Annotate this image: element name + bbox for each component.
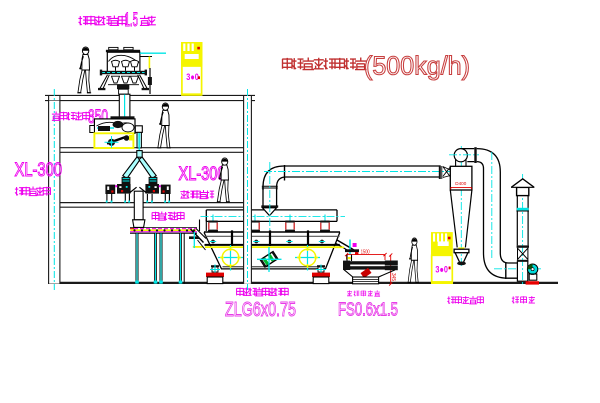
svg-text:3●0: 3●0 xyxy=(186,72,199,83)
svg-text:3●0: 3●0 xyxy=(435,265,448,276)
svg-text:FS0.6x1.5: FS0.6x1.5 xyxy=(338,298,398,319)
svg-text:1500: 1500 xyxy=(361,249,370,255)
svg-text:XL-300: XL-300 xyxy=(179,164,226,185)
svg-text:(500kg/h): (500kg/h) xyxy=(364,51,470,81)
svg-text:ZLG6x0.75: ZLG6x0.75 xyxy=(225,298,296,321)
svg-text:345: 345 xyxy=(390,273,396,281)
svg-text:D400: D400 xyxy=(455,181,466,186)
svg-text:XL-300: XL-300 xyxy=(15,159,63,181)
svg-text:1.5: 1.5 xyxy=(125,10,139,31)
